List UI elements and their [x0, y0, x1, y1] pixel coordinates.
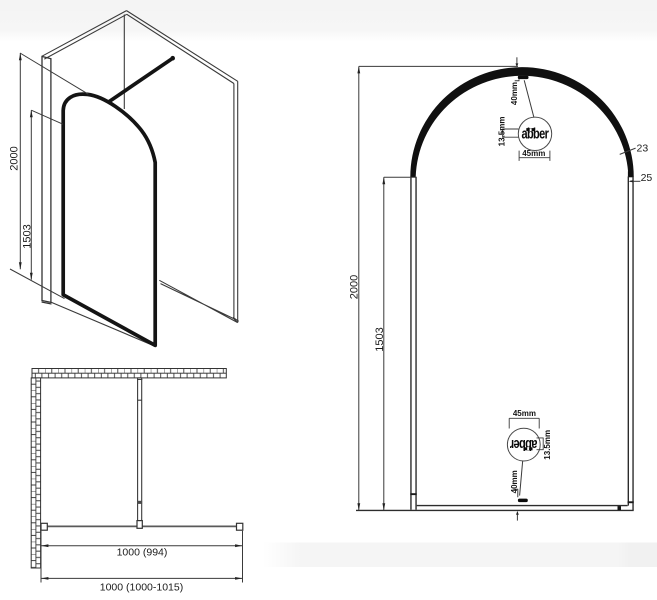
svg-text:23: 23	[637, 142, 649, 154]
svg-text:1000 (1000-1015): 1000 (1000-1015)	[100, 582, 183, 594]
svg-text:1503: 1503	[22, 224, 34, 248]
svg-text:25: 25	[641, 172, 653, 184]
svg-text:13.5mm: 13.5mm	[543, 430, 552, 460]
svg-text:40mm: 40mm	[510, 470, 519, 493]
svg-text:abber: abber	[521, 125, 548, 142]
svg-text:abber: abber	[510, 437, 537, 454]
svg-text:1000 (994): 1000 (994)	[117, 546, 168, 558]
svg-text:2000: 2000	[349, 275, 361, 299]
svg-text:13.5mm: 13.5mm	[498, 117, 507, 147]
svg-text:40mm: 40mm	[510, 82, 519, 105]
svg-text:1503: 1503	[374, 327, 386, 351]
svg-text:2000: 2000	[8, 146, 20, 170]
svg-text:45mm: 45mm	[522, 149, 545, 158]
svg-text:45mm: 45mm	[513, 409, 536, 418]
